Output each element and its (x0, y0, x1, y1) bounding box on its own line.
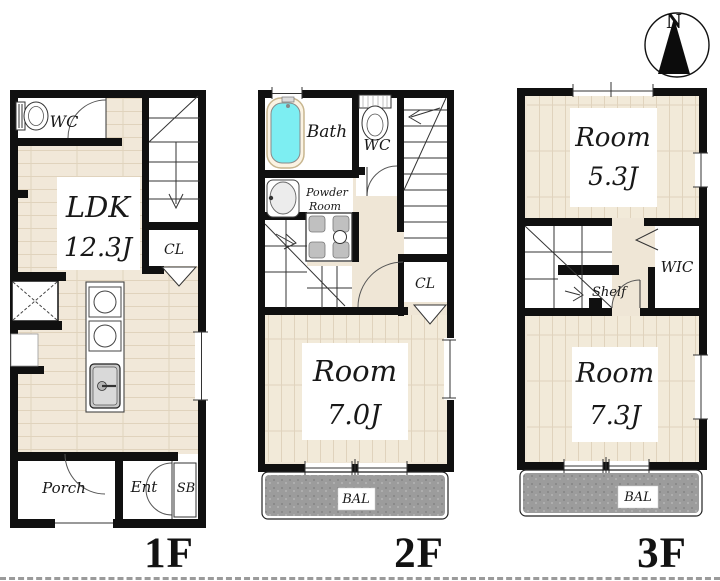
room-label-wc-2f: WC (364, 136, 391, 154)
balcony-label-3f: BAL (623, 490, 652, 505)
north-label: N (666, 9, 681, 33)
room-label-powder-1: Powder (305, 186, 349, 199)
room-label-wc-1f: WC (50, 112, 79, 131)
bathtub-icon (267, 97, 304, 168)
room-size-ldk: 12.3J (64, 233, 134, 263)
washbasin-icon (267, 180, 299, 217)
room-label-cl-2f: CL (415, 276, 435, 292)
floor-plan-1f: WC LDK 12.3J CL Porch Ent SB (8, 86, 208, 536)
window-right-2f (442, 338, 456, 400)
room-label-powder-2: Room (308, 200, 341, 213)
stairwell-1f (148, 94, 200, 228)
room-label-cl-1f: CL (164, 242, 184, 258)
wall-recess-1f (11, 334, 38, 366)
room2-size-3f: 7.3J (589, 401, 642, 431)
floor-plan-sheet: N (0, 0, 720, 581)
window-right-1f (193, 332, 208, 400)
room-label-ldk: LDK (65, 190, 133, 224)
room-size-2f: 7.0J (327, 400, 383, 431)
window-top-3f (573, 82, 653, 97)
room-label-porch: Porch (41, 479, 86, 497)
room-label-wic: WIC (661, 258, 694, 276)
window-right-upper-3f (693, 153, 708, 187)
sink-icon (90, 364, 120, 408)
shelf-label: Shelf (592, 285, 628, 300)
floor-title-1f: 1F (134, 532, 204, 575)
room1-label-3f: Room (574, 123, 651, 153)
room2-label-3f: Room (575, 358, 654, 389)
void-space-icon (12, 281, 58, 321)
washing-machine-pan-icon (306, 213, 352, 261)
room-label-bath: Bath (306, 122, 347, 142)
balcony-3f (520, 470, 702, 516)
window-right-lower-3f (693, 355, 708, 419)
room-label-sb: SB (177, 481, 195, 496)
floor-title-2f: 2F (384, 532, 454, 575)
floor-plan-2f: Bath WC Powder Room CL Room 7.0J BAL (256, 86, 456, 536)
balcony-label-2f: BAL (341, 492, 370, 507)
room-label-ent: Ent (130, 478, 159, 496)
floor-title-3f: 3F (622, 532, 702, 575)
compass-icon: N (640, 4, 716, 84)
stairwell-2f-lower-ext (307, 266, 352, 308)
bottom-border-line (0, 577, 720, 580)
kitchen-counter-icon (86, 282, 124, 412)
room1-size-3f: 5.3J (588, 162, 640, 191)
room-label-2f: Room (312, 354, 397, 388)
toilet-icon-1f (16, 102, 48, 130)
floor-plan-3f: Room 5.3J WIC Shelf Room 7.3J BAL (514, 82, 714, 532)
